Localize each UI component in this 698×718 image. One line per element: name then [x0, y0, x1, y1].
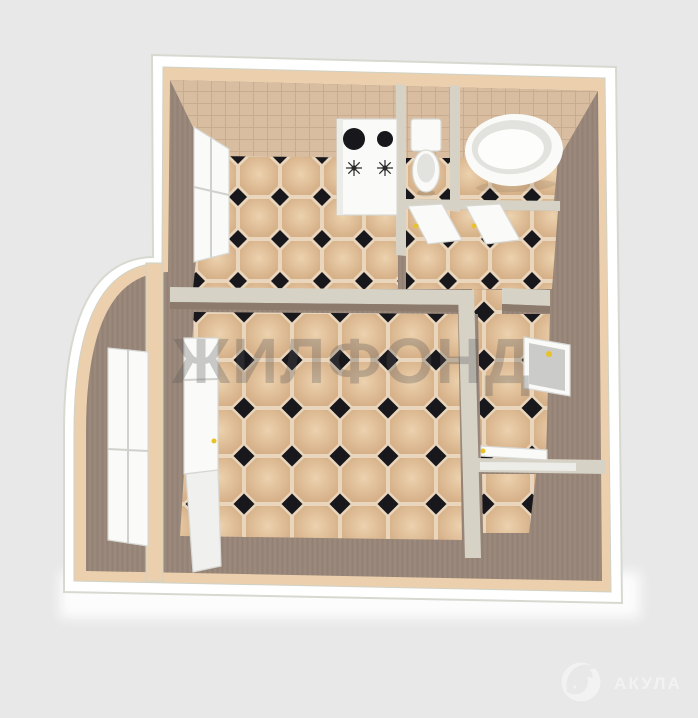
balcony-bay-window [108, 348, 148, 546]
floor-plan-3d-render: ЖИЛФОНД АКУЛА [0, 0, 698, 718]
watermark-text: ЖИЛФОНД [171, 325, 532, 397]
corridor-stub-wall [502, 288, 550, 306]
living-room-top-wall [170, 287, 470, 305]
door-handle [212, 439, 217, 444]
burner-symbol-icon [346, 160, 362, 176]
agency-logo-text: АКУЛА [614, 675, 682, 693]
burner-symbol-icon [377, 160, 393, 176]
door-handle [472, 224, 477, 229]
wc-bathroom-partition [450, 85, 460, 212]
kitchen-window [194, 127, 229, 262]
door-handle [414, 224, 419, 229]
door-handle [546, 351, 552, 357]
corridor-door-lintel [480, 462, 576, 471]
kitchen-stove [337, 119, 397, 215]
toilet [411, 119, 441, 197]
corridor-lower-floor [482, 474, 536, 533]
door-handle [481, 449, 486, 454]
corridor-opening-floor [472, 289, 502, 314]
burner-small [377, 131, 393, 147]
shark-icon [562, 663, 601, 702]
burner-large [343, 128, 365, 150]
